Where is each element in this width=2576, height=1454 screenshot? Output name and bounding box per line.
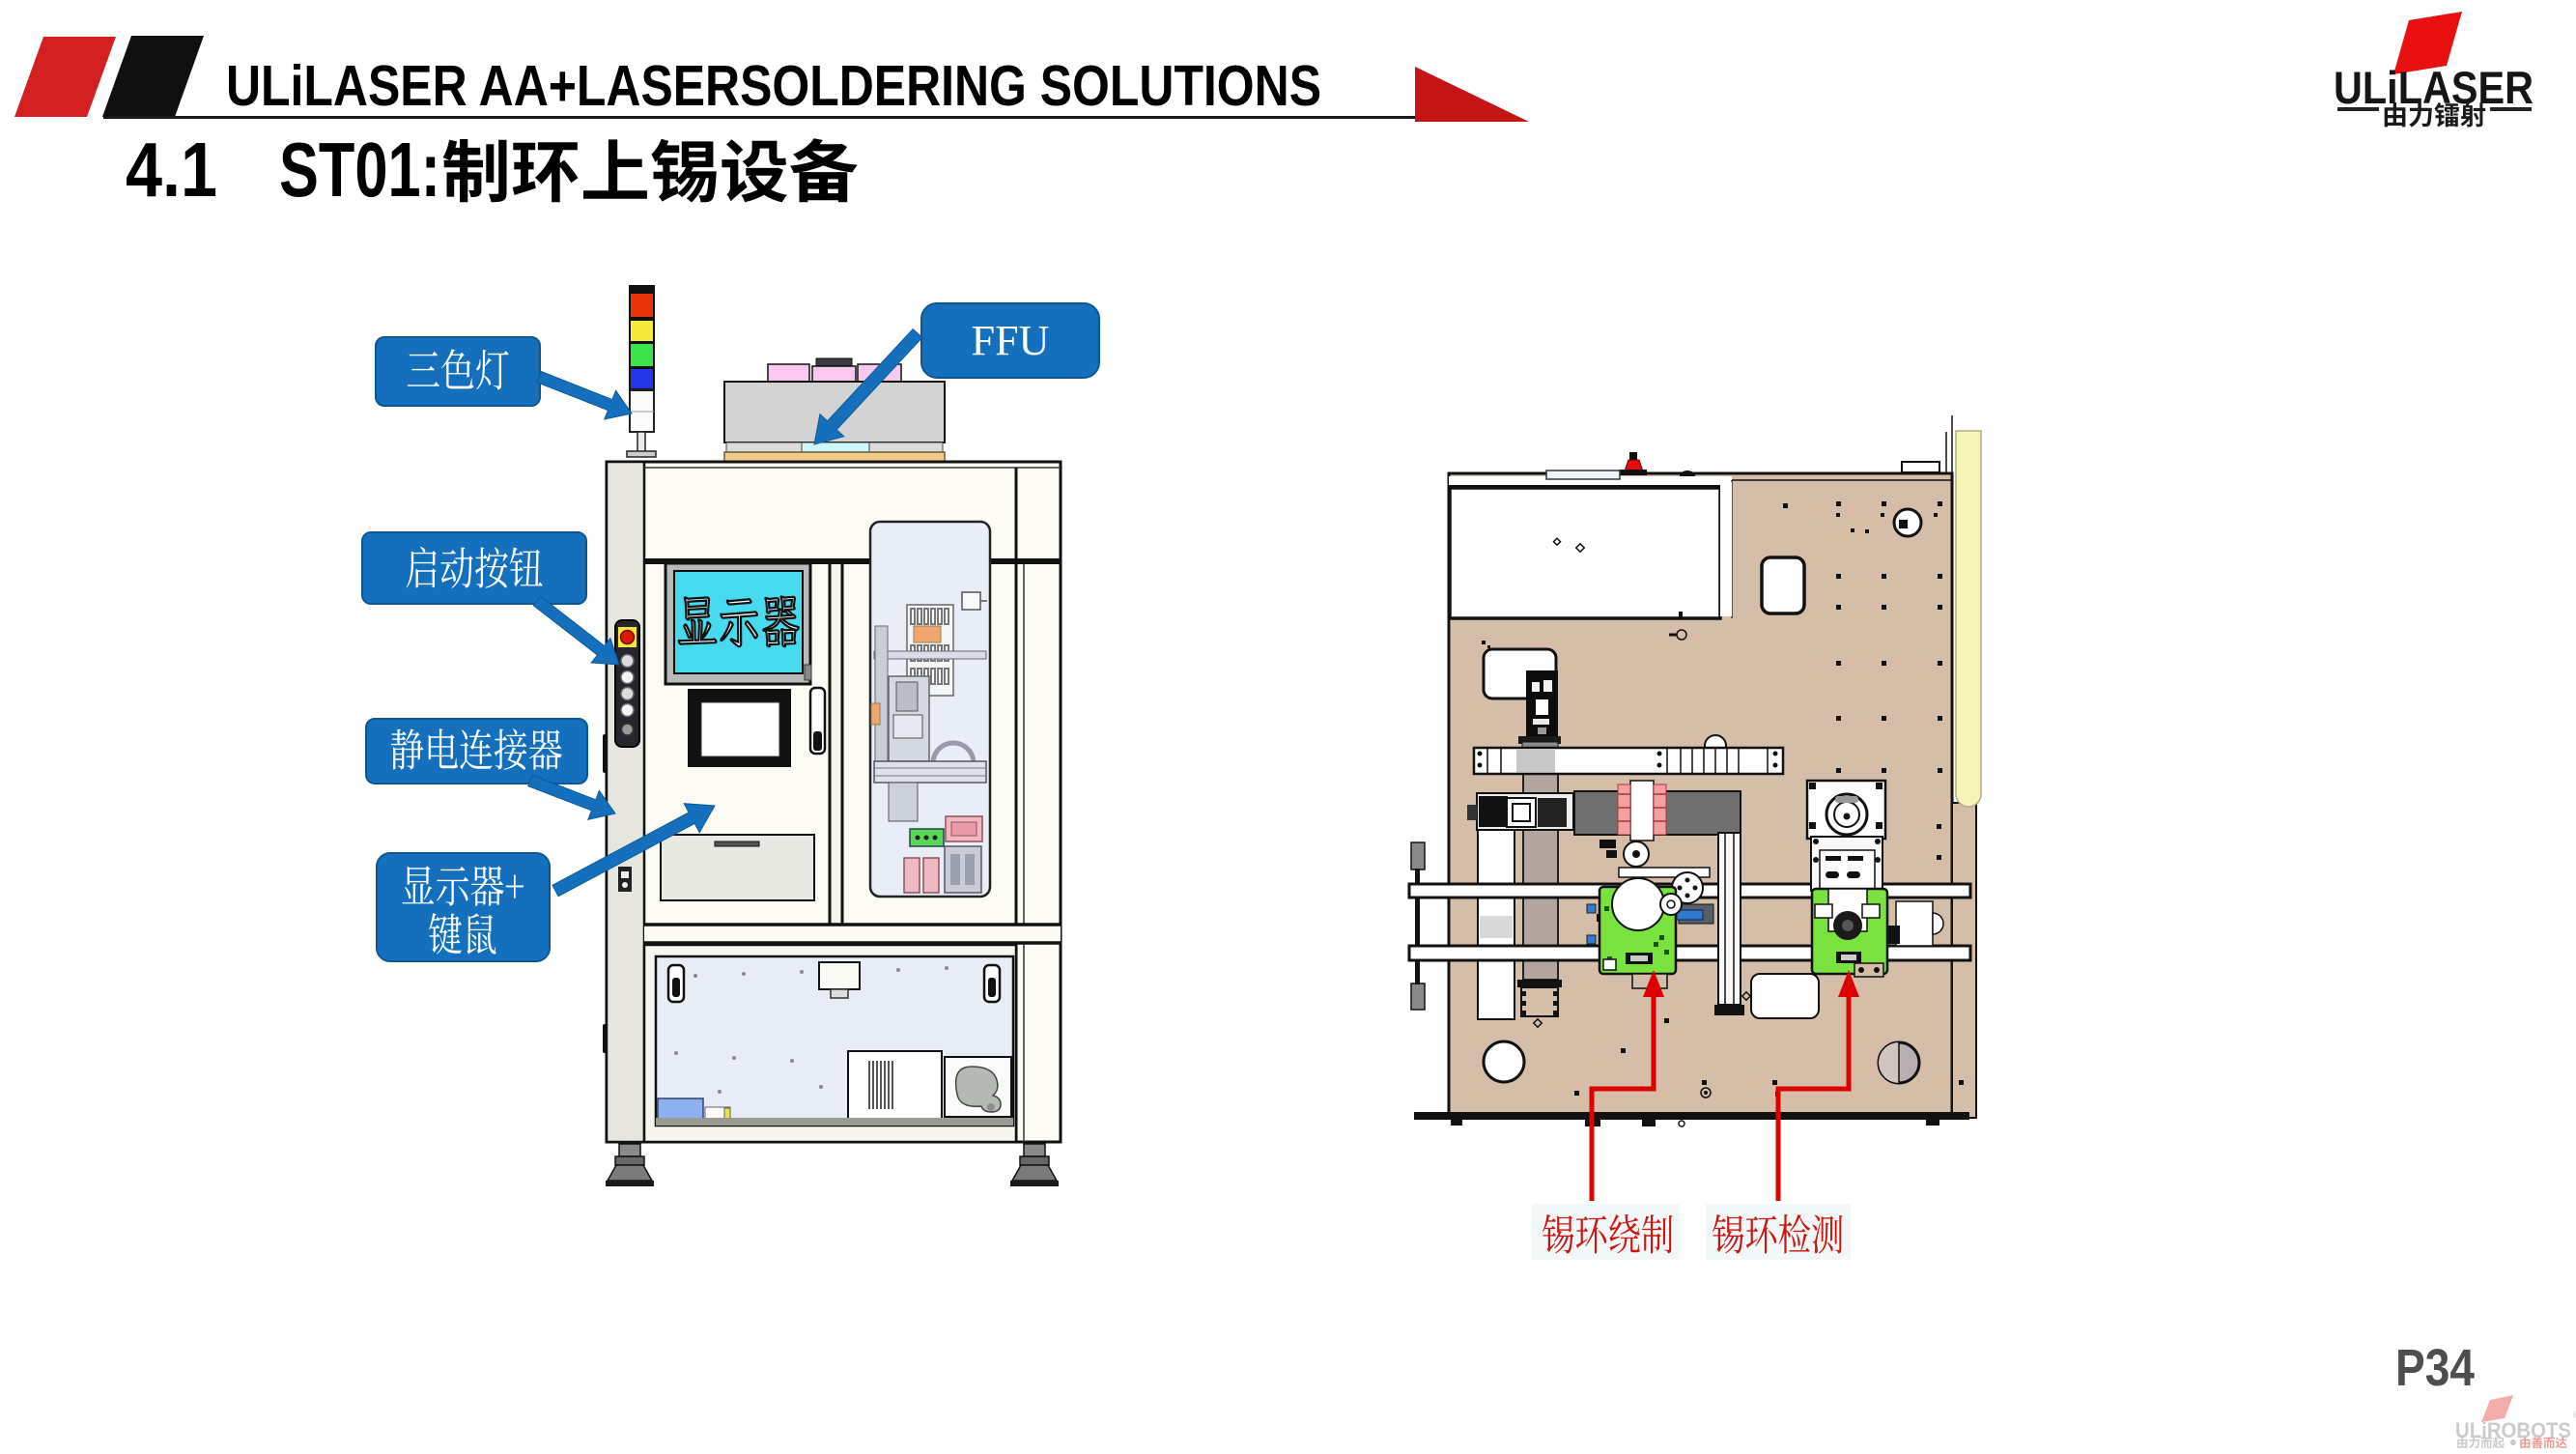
svg-text:ULiLASER: ULiLASER — [2334, 62, 2534, 113]
svg-text:4.1: 4.1 — [126, 127, 217, 213]
svg-text:ULiLASER AA+LASERSOLDERING SOL: ULiLASER AA+LASERSOLDERING SOLUTIONS — [226, 54, 1321, 118]
svg-text:P34: P34 — [2395, 1339, 2475, 1397]
svg-text:ST01:: ST01: — [279, 127, 440, 213]
svg-text:FFU: FFU — [972, 317, 1050, 364]
